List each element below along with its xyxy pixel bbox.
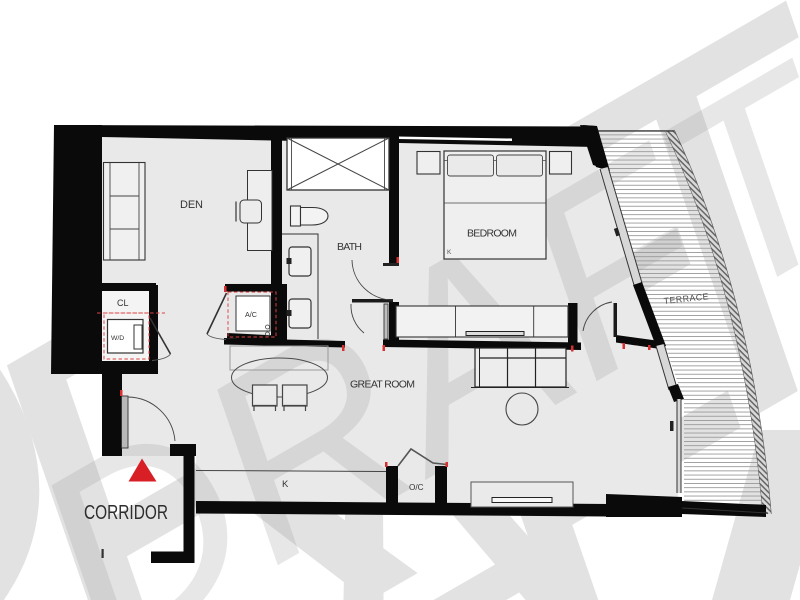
svg-text:O/C: O/C <box>409 483 424 492</box>
svg-text:W/D: W/D <box>111 335 124 342</box>
svg-text:CORRIDOR: CORRIDOR <box>84 501 168 524</box>
svg-text:BATH: BATH <box>337 241 362 253</box>
svg-text:CL: CL <box>117 298 129 308</box>
svg-text:K: K <box>447 249 452 256</box>
svg-text:BEDROOM: BEDROOM <box>467 228 517 240</box>
svg-text:DEN: DEN <box>180 199 203 211</box>
svg-text:A/C: A/C <box>245 310 257 319</box>
svg-text:K: K <box>282 479 289 490</box>
svg-text:GREAT ROOM: GREAT ROOM <box>350 379 415 391</box>
